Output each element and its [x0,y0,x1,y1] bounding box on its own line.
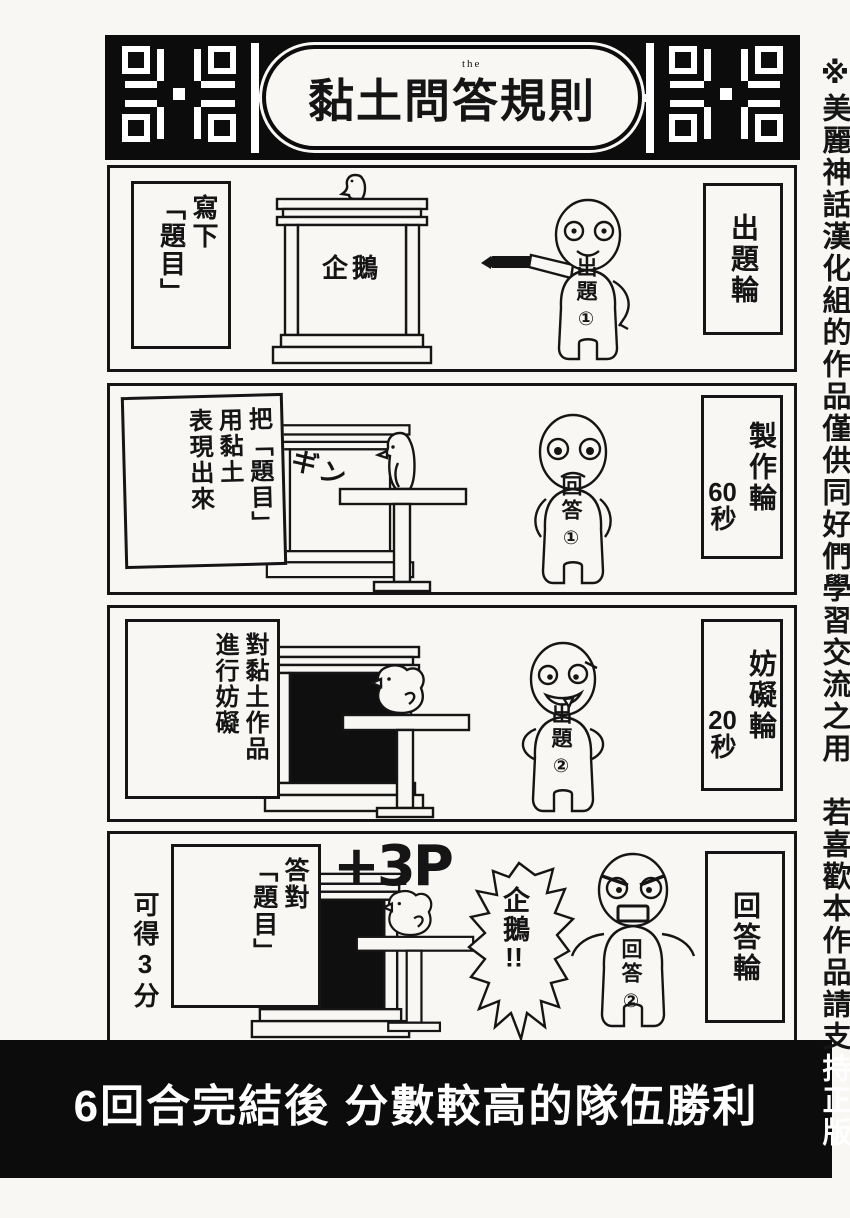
duration-value: 60 [707,479,737,505]
figure-number: ② [550,755,571,780]
figure-body-label: 回答① [555,475,585,575]
figure-body-label: 出題① [570,256,600,361]
round-label: 妨礙輪 [741,649,781,762]
round-label-box: 製作輪 60秒 [701,395,783,559]
side-note-main: ※美麗神話漢化組的作品僅供同好們學習交流之用 若喜歡本作品請支 [818,56,850,1053]
page-title: 黏土問答規則 [308,65,596,131]
side-note-inverted: 持正版 [818,1053,850,1149]
figure-role: 回答 [559,475,582,523]
pedestal-with-chick-clay [355,851,475,1043]
figure-role: 出題 [549,703,572,751]
panel-4-answer-round: 答對 「題目」 可得3分 +3P 企鵝!! [107,831,797,1040]
panel-2-making-round: 把「題目」 用黏土 表現出來 ギン 回答① 製作輪 60秒 [107,383,797,595]
speech-word: 企鵝 [499,886,529,944]
round-label-box: 妨礙輪 20秒 [701,619,783,791]
manga-page: the 黏土問答規則 寫下 「題目」 企鵝 [0,0,850,1218]
figure-number: ① [575,308,596,333]
duration-unit: 秒 [707,733,737,762]
round-duration: 60秒 [704,421,741,534]
figure-body-label: 出題② [545,703,575,813]
maze-pattern-icon [113,43,273,153]
speech-bubble-text: 企鵝!! [495,886,534,1016]
panel-3-sabotage-round: 對黏土作品 進行妨礙 出題② 妨礙輪 20 [107,605,797,822]
speech-exclamation: !! [499,944,529,971]
caption-correct-answer: 答對 「題目」 [171,844,321,1008]
pedestal-with-penguin-clay [338,411,468,593]
duration-value: 20 [707,707,737,733]
caption-write-topic: 寫下 「題目」 [131,181,231,349]
title-ruby: the [462,58,481,70]
footer-text: 6回合完結後 分數較高的隊伍勝利 [74,1070,759,1148]
figure-role: 回答 [619,938,642,986]
round-label: 回答輪 [725,891,765,984]
round-label: 出題輪 [723,213,763,306]
board-answer-text: 企鵝 [298,248,406,285]
figure-number: ② [620,990,641,1015]
maze-pattern-icon [632,43,792,153]
side-note: ※美麗神話漢化組的作品僅供同好們學習交流之用 若喜歡本作品請支持正版 [804,56,848,1214]
panel-1-topic-round: 寫下 「題目」 企鵝 出題① [107,165,797,372]
footer-banner: 6回合完結後 分數較高的隊伍勝利 [0,1040,832,1178]
figure-question-setter-1 [473,193,663,365]
round-label-box: 回答輪 [705,851,785,1023]
figure-number: ① [560,527,581,552]
caption-make-clay: 把「題目」 用黏土 表現出來 [121,393,287,569]
title-pill: the 黏土問答規則 [262,45,642,150]
figure-body-label: 回答② [615,938,645,1038]
duration-unit: 秒 [707,505,737,534]
caption-score-points: 可得3分 [127,891,164,1031]
figure-role: 出題 [574,256,597,304]
pedestal-with-chick-clay [341,633,471,819]
title-banner: the 黏土問答規則 [105,35,800,160]
caption-sabotage: 對黏土作品 進行妨礙 [125,619,280,799]
round-label-box: 出題輪 [703,183,783,335]
round-label: 製作輪 [741,421,781,534]
round-duration: 20秒 [704,649,741,762]
